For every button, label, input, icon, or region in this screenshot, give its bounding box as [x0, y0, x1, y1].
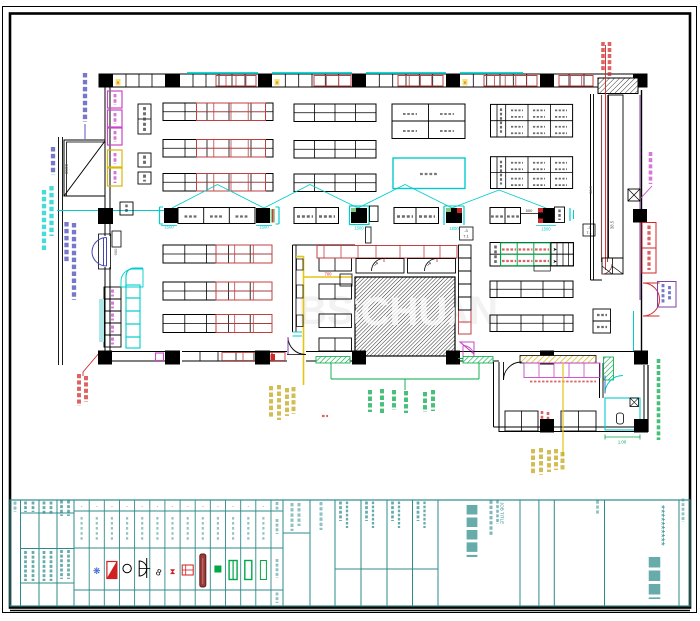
svg-text:**********: ********** — [655, 505, 667, 546]
svg-text:➤: ➤ — [553, 259, 557, 265]
svg-text:500: 500 — [526, 208, 533, 213]
svg-text:1.00: 1.00 — [618, 440, 627, 445]
svg-text:7.1: 7.1 — [586, 230, 592, 235]
svg-text:JOB TITLE: JOB TITLE — [500, 502, 505, 524]
svg-text:↗: ↗ — [373, 262, 378, 268]
svg-text:38.5: 38.5 — [588, 185, 593, 194]
svg-text:×: × — [463, 81, 466, 87]
svg-text:×: × — [275, 81, 278, 87]
svg-text:3500: 3500 — [64, 163, 69, 174]
svg-text:⧗: ⧗ — [170, 567, 176, 576]
svg-text:1500: 1500 — [541, 227, 551, 232]
svg-text:➤: ➤ — [553, 247, 557, 253]
svg-text:↗: ↗ — [426, 262, 431, 268]
svg-text:38.5: 38.5 — [610, 220, 615, 229]
svg-text:1800: 1800 — [449, 226, 459, 231]
svg-text:700: 700 — [325, 272, 333, 277]
svg-text:1500: 1500 — [354, 226, 364, 231]
svg-text:900: 900 — [113, 248, 118, 255]
svg-text:❋: ❋ — [93, 566, 101, 576]
svg-text:7.1: 7.1 — [463, 234, 469, 239]
svg-text:×: × — [116, 81, 119, 87]
